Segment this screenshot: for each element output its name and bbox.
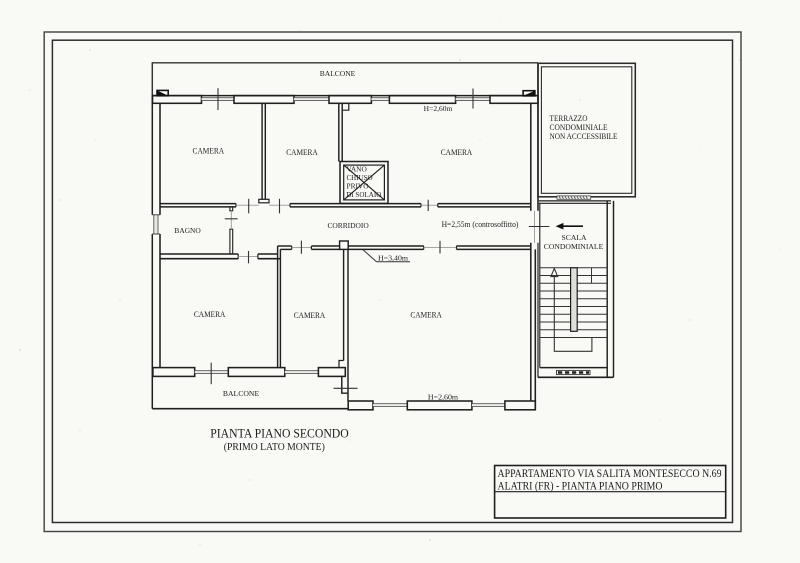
svg-text:CORRIDOIO: CORRIDOIO — [327, 221, 369, 230]
svg-text:CAMERA: CAMERA — [194, 309, 226, 319]
svg-text:CAMERA: CAMERA — [441, 147, 473, 157]
svg-text:BALCONE: BALCONE — [223, 389, 260, 398]
svg-text:NON ACCCESSIBILE: NON ACCCESSIBILE — [550, 132, 618, 141]
svg-text:BAGNO: BAGNO — [174, 226, 201, 235]
svg-text:APPARTAMENTO VIA SALITA MONTE: APPARTAMENTO VIA SALITA MONTESECCO N.69 — [498, 468, 722, 480]
svg-text:CONDOMINIALE: CONDOMINIALE — [544, 242, 604, 251]
svg-text:TERRAZZO: TERRAZZO — [550, 114, 588, 123]
svg-text:CAMERA: CAMERA — [294, 310, 326, 320]
svg-text:CHIUSO: CHIUSO — [347, 174, 373, 182]
svg-text:VANO: VANO — [347, 166, 367, 174]
svg-text:CAMERA: CAMERA — [193, 145, 225, 155]
svg-text:ALATRI (FR) - PIANTA PIANO PR: ALATRI (FR) - PIANTA PIANO PRIMO — [498, 480, 663, 492]
svg-text:H=2,60m: H=2,60m — [424, 104, 453, 113]
svg-text:H=3,40m: H=3,40m — [378, 253, 408, 262]
svg-text:PIANTA PIANO SECONDO: PIANTA PIANO SECONDO — [210, 426, 349, 441]
svg-text:SCALA: SCALA — [562, 233, 587, 242]
svg-text:PRIVO: PRIVO — [347, 183, 369, 191]
svg-text:(PRIMO LATO MONTE): (PRIMO LATO MONTE) — [224, 442, 325, 453]
svg-text:H=2,60m: H=2,60m — [428, 392, 458, 401]
svg-text:CONDOMINIALE: CONDOMINIALE — [550, 123, 608, 132]
svg-text:CAMERA: CAMERA — [410, 310, 442, 320]
svg-text:BALCONE: BALCONE — [320, 69, 356, 78]
svg-text:DI SOLAIO: DI SOLAIO — [346, 191, 381, 199]
svg-text:H=2,55m (controsoffitto): H=2,55m (controsoffitto) — [442, 220, 519, 229]
svg-text:CAMERA: CAMERA — [286, 147, 318, 157]
